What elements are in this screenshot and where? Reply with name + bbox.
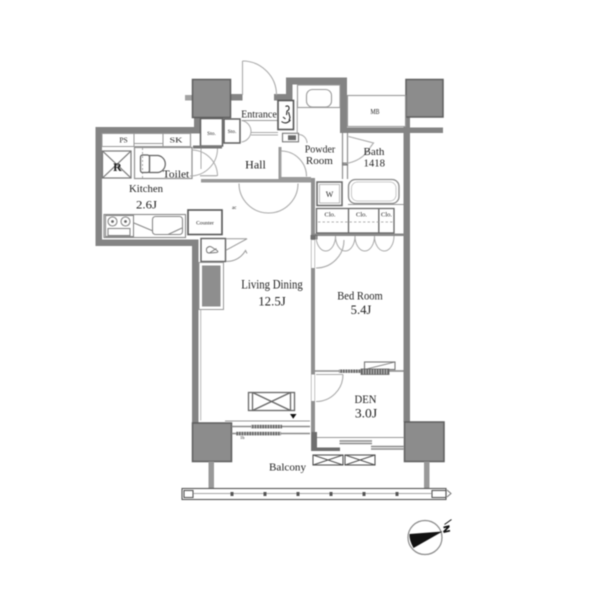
svg-text:Clo.: Clo. [324,212,335,219]
svg-text:Clo.: Clo. [356,212,367,219]
svg-text:ac: ac [232,206,237,211]
svg-text:MB: MB [371,108,380,116]
svg-text:Sto.: Sto. [207,131,216,137]
svg-text:Entrance: Entrance [241,110,277,121]
svg-text:Clo.: Clo. [381,212,392,219]
svg-text:Hall: Hall [245,158,266,172]
svg-text:Counter: Counter [196,221,214,227]
svg-text:12.5J: 12.5J [258,294,286,309]
svg-text:DEN: DEN [355,392,377,406]
svg-text:Bath: Bath [364,146,385,158]
svg-text:Bed Room: Bed Room [337,289,383,303]
svg-text:R: R [113,160,122,174]
svg-text:Toilet: Toilet [163,169,190,181]
svg-text:Balcony: Balcony [269,463,306,474]
svg-text:5.4J: 5.4J [351,303,372,317]
svg-text:Kitchen: Kitchen [129,184,164,195]
svg-text:W: W [326,190,334,199]
svg-text:3.0J: 3.0J [355,407,377,421]
svg-text:2.6J: 2.6J [136,200,158,212]
svg-text:PS: PS [119,136,127,145]
svg-text:1b: 1b [240,435,245,440]
svg-text:SK: SK [170,137,183,145]
svg-text:Sto.: Sto. [228,129,237,135]
svg-text:Living Dining: Living Dining [241,277,303,292]
svg-text:Powder: Powder [305,145,336,156]
svg-text:Room: Room [306,156,333,167]
svg-text:1418: 1418 [364,158,386,170]
